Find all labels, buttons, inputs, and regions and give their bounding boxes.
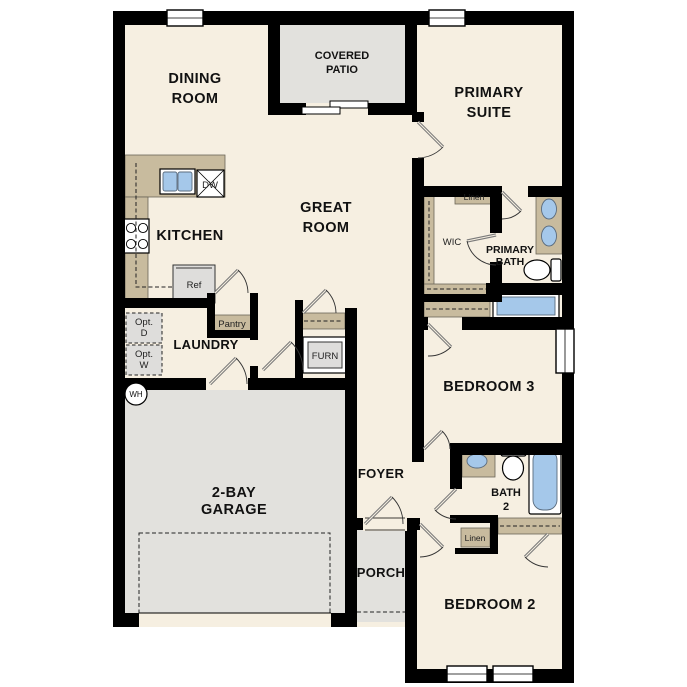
garage-label: 2-BAY bbox=[212, 485, 256, 501]
primary-bath-label-2: BATH bbox=[496, 256, 524, 268]
window-bedroom2-right bbox=[493, 666, 533, 682]
linen-lower-label: Linen bbox=[465, 533, 486, 543]
dining-room-label: DINING bbox=[168, 71, 221, 87]
great-room-label: GREAT bbox=[300, 200, 352, 216]
kitchen-label: KITCHEN bbox=[156, 228, 223, 244]
water-heater-label: WH bbox=[129, 390, 143, 399]
garage-label-2: GARAGE bbox=[201, 502, 267, 518]
bath2-tub bbox=[529, 446, 561, 514]
kitchen-sink bbox=[160, 169, 195, 194]
floor-plan-svg: DINING ROOM COVERED PATIO PRIMARY SUITE … bbox=[0, 0, 687, 687]
opt-washer-label-2: W bbox=[140, 360, 149, 371]
furnace-label: FURN bbox=[312, 351, 339, 362]
pantry-label: Pantry bbox=[218, 319, 246, 330]
great-room-label-2: ROOM bbox=[303, 220, 350, 236]
refrigerator-label: Ref bbox=[187, 280, 202, 291]
primary-shower bbox=[493, 293, 559, 319]
dining-room-label-2: ROOM bbox=[172, 91, 219, 107]
covered-patio-label-2: PATIO bbox=[326, 64, 358, 76]
bath2-sink bbox=[467, 454, 487, 468]
opt-washer-label: Opt. bbox=[135, 349, 153, 360]
window-primary-suite bbox=[429, 10, 465, 26]
window-bedroom2-left bbox=[447, 666, 487, 682]
foyer-label: FOYER bbox=[358, 466, 405, 481]
floor-plan-image: DINING ROOM COVERED PATIO PRIMARY SUITE … bbox=[0, 0, 687, 687]
porch-label: PORCH bbox=[357, 565, 405, 580]
primary-bath-label: PRIMARY bbox=[486, 244, 534, 256]
opt-dryer-label-2: D bbox=[141, 328, 148, 339]
opt-dryer-label: Opt. bbox=[135, 317, 153, 328]
primary-suite-label-2: SUITE bbox=[467, 105, 512, 121]
window-dining bbox=[167, 10, 203, 26]
wic-label: WIC bbox=[443, 237, 462, 248]
bath2-label-2: 2 bbox=[503, 501, 509, 513]
primary-suite-label: PRIMARY bbox=[454, 85, 523, 101]
covered-patio-label: COVERED bbox=[315, 50, 369, 62]
window-bedroom3 bbox=[556, 329, 574, 373]
bedroom2-label: BEDROOM 2 bbox=[444, 597, 535, 613]
bath2-label: BATH bbox=[491, 487, 521, 499]
dishwasher-label: DW bbox=[202, 180, 218, 191]
laundry-label: LAUNDRY bbox=[173, 337, 238, 352]
primary-toilet bbox=[524, 259, 561, 281]
bedroom3-label: BEDROOM 3 bbox=[443, 379, 534, 395]
linen-upper-label: Linen bbox=[464, 192, 485, 202]
